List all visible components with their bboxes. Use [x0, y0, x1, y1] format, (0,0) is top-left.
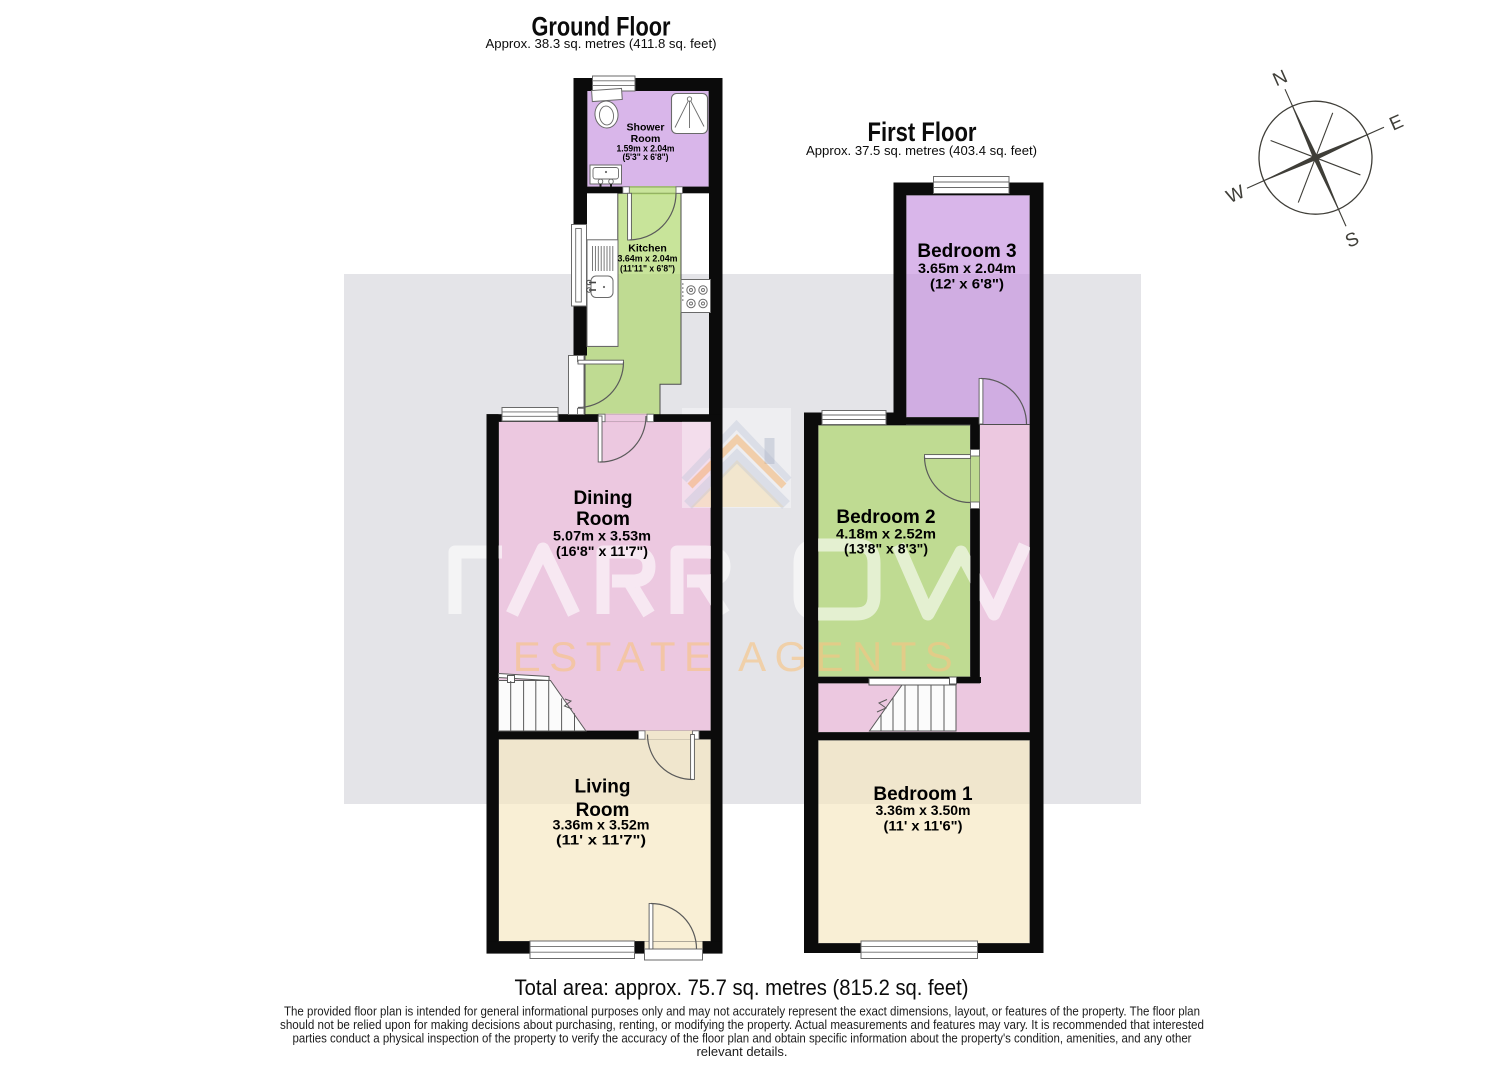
svg-text:3.36m x 3.52m: 3.36m x 3.52m: [553, 818, 650, 833]
svg-text:(5'3" x 6'8"): (5'3" x 6'8"): [623, 152, 669, 162]
svg-text:Room: Room: [576, 509, 630, 530]
svg-text:Bedroom 3: Bedroom 3: [917, 241, 1016, 262]
svg-text:Total area: approx. 75.7 sq. m: Total area: approx. 75.7 sq. metres (815…: [515, 975, 969, 1000]
svg-text:relevant details.: relevant details.: [696, 1044, 787, 1059]
svg-text:Approx. 37.5 sq. metres (403.4: Approx. 37.5 sq. metres (403.4 sq. feet): [806, 143, 1037, 158]
svg-text:(11'11" x 6'8"): (11'11" x 6'8"): [620, 264, 675, 274]
svg-text:Bedroom 2: Bedroom 2: [836, 507, 935, 528]
svg-text:Shower: Shower: [627, 122, 665, 134]
svg-text:(16'8" x 11'7"): (16'8" x 11'7"): [556, 544, 648, 559]
svg-text:Approx. 38.3 sq. metres (411.8: Approx. 38.3 sq. metres (411.8 sq. feet): [486, 36, 717, 51]
svg-text:(11' x 11'7"): (11' x 11'7"): [556, 833, 646, 848]
svg-text:5.07m x 3.53m: 5.07m x 3.53m: [553, 529, 651, 544]
svg-text:(13'8" x 8'3"): (13'8" x 8'3"): [844, 542, 928, 557]
svg-text:Bedroom 1: Bedroom 1: [873, 784, 973, 805]
svg-text:ESTATE AGENTS: ESTATE AGENTS: [513, 633, 961, 680]
svg-text:Dining: Dining: [573, 488, 632, 509]
svg-text:(12' x 6'8"): (12' x 6'8"): [930, 277, 1004, 292]
svg-text:4.18m x 2.52m: 4.18m x 2.52m: [836, 527, 936, 542]
svg-text:3.65m x 2.04m: 3.65m x 2.04m: [918, 261, 1016, 276]
svg-text:3.64m x 2.04m: 3.64m x 2.04m: [618, 254, 678, 264]
svg-text:Living: Living: [575, 777, 631, 798]
svg-text:(11' x 11'6"): (11' x 11'6"): [884, 819, 963, 834]
svg-text:3.36m x 3.50m: 3.36m x 3.50m: [876, 803, 971, 818]
